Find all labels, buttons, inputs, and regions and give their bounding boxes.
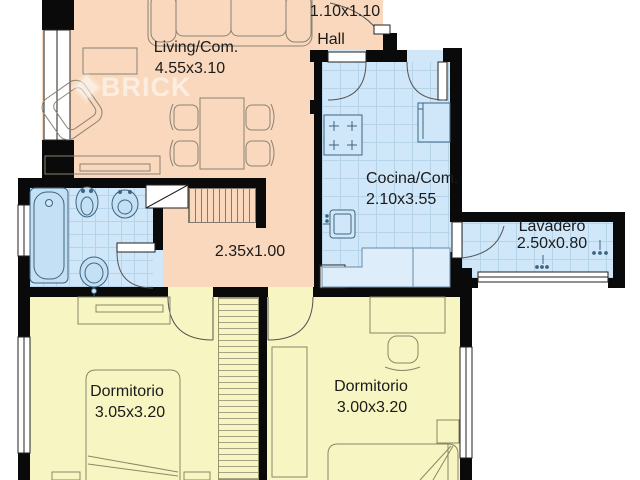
bedroom-right-dims: 3.00x3.20 — [337, 399, 407, 416]
kitchen-door-right — [407, 62, 447, 100]
hall-label: Hall — [317, 31, 345, 48]
laundry-connection-right — [593, 240, 608, 254]
bathroom-fixtures — [30, 187, 138, 296]
nightstand — [52, 472, 80, 480]
hall-dims: 1.10x1.10 — [310, 3, 380, 20]
kitchen-label: Cocina/Com. — [366, 170, 458, 187]
desk — [370, 297, 445, 333]
laundry-dims: 2.50x0.80 — [517, 235, 587, 252]
nightstand — [437, 420, 459, 443]
living-label: Living/Com. — [154, 39, 238, 56]
laundry-connection-bottom — [536, 255, 549, 268]
bathroom-shelf — [146, 185, 188, 208]
wall — [42, 140, 74, 188]
wall — [18, 453, 30, 480]
living-furniture — [38, 0, 312, 174]
kitchen-sink — [323, 210, 355, 238]
wall — [310, 50, 328, 62]
floor-plan: Living/Com. 4.55x3.10 1.10x1.10 Hall Coc… — [0, 0, 640, 480]
bidet — [76, 187, 98, 217]
wall — [460, 268, 472, 347]
window-bedroom-left — [18, 337, 30, 453]
bed-right — [328, 444, 458, 480]
fridge — [418, 103, 450, 142]
bathroom-door — [117, 243, 155, 288]
window-bathroom — [18, 205, 30, 256]
wall — [18, 256, 30, 297]
bathtub — [30, 188, 68, 283]
wall — [42, 0, 74, 30]
wall — [310, 100, 322, 114]
living-dims: 4.55x3.10 — [155, 60, 225, 77]
wall — [256, 178, 266, 228]
nightstand — [184, 472, 210, 480]
dresser — [78, 297, 170, 324]
bedroom-right-door — [268, 297, 313, 340]
wall — [460, 458, 472, 480]
window-bedroom-right — [460, 347, 472, 458]
kitchen-counter — [322, 248, 450, 287]
window-laundry — [478, 272, 608, 282]
laundry-label: Lavadero — [519, 218, 586, 235]
plan-linework: Living/Com. 4.55x3.10 1.10x1.10 Hall Coc… — [0, 0, 640, 480]
wall — [259, 297, 267, 480]
wall — [18, 188, 30, 205]
dining-chairs — [170, 104, 274, 166]
wall — [613, 212, 625, 288]
laundry-door — [452, 222, 504, 258]
bedroom-left-label: Dormitorio — [90, 383, 164, 400]
dining-table — [200, 98, 244, 169]
stove — [324, 115, 362, 155]
wall — [314, 62, 322, 288]
kitchen-door-left — [328, 52, 366, 100]
corridor-dims: 2.35x1.00 — [215, 243, 285, 260]
bedroom-left-door — [168, 297, 213, 340]
wall — [18, 297, 30, 337]
wardrobe-right-bedroom — [272, 347, 307, 477]
bedroom-left-dims: 3.05x3.20 — [95, 404, 165, 421]
wall — [383, 33, 397, 58]
kitchen-dims: 2.10x3.55 — [366, 191, 436, 208]
wall — [450, 48, 462, 222]
bedroom-right-label: Dormitorio — [334, 378, 408, 395]
coffee-table — [83, 48, 137, 74]
wall — [213, 287, 268, 297]
desk-chair — [385, 336, 420, 371]
toilet — [112, 190, 138, 218]
